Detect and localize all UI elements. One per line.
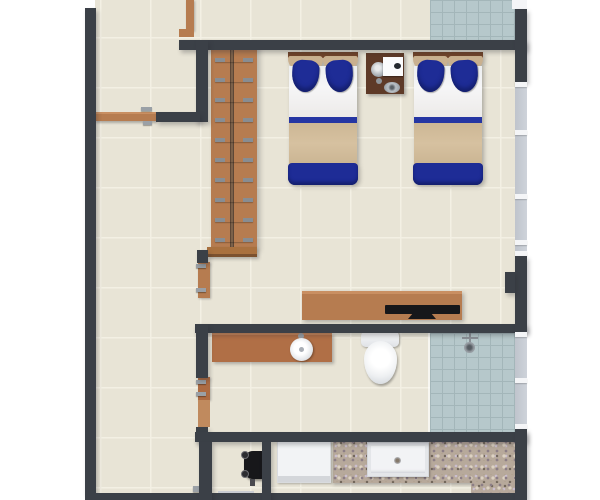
hanger-hook <box>215 198 253 202</box>
door-hinge <box>196 392 206 396</box>
wall-right-upper <box>515 9 527 82</box>
window-mullion <box>515 194 527 199</box>
wall-top-horizontal <box>179 40 527 50</box>
hanger-hook <box>215 218 253 222</box>
wardrobe-rail-hooks <box>211 44 257 249</box>
wall-bath-left <box>196 324 208 378</box>
bed-blanket <box>414 123 482 164</box>
shower-head-icon <box>464 342 475 353</box>
hanger-hook <box>215 98 253 102</box>
tv-console <box>302 291 462 320</box>
telephone-card <box>383 57 403 76</box>
hanger-hook <box>215 118 253 122</box>
bathroom-door-leaf <box>198 400 210 427</box>
heater-knob <box>241 470 249 478</box>
tray-icon <box>384 82 400 93</box>
tv-screen <box>385 305 460 314</box>
floorplan-scene <box>0 0 600 500</box>
hanger-hook <box>215 158 253 162</box>
bathroom-vanity <box>212 333 332 362</box>
wall-kitchen-divider <box>195 432 527 442</box>
shower-glass-partition <box>428 333 430 432</box>
wardrobe-base <box>207 247 257 257</box>
window-mullion <box>515 130 527 135</box>
heater-pipe <box>250 479 255 486</box>
wall-bath-divider <box>195 324 527 333</box>
sink-drain-knob <box>394 457 401 464</box>
wall-right-middle <box>515 256 527 332</box>
entry-door <box>95 112 156 121</box>
wall-wardrobe-stub <box>197 250 208 263</box>
hanger-hook <box>215 178 253 182</box>
shower-arm <box>462 337 478 339</box>
hanger-hook <box>215 238 253 242</box>
window-top-corner <box>512 0 527 9</box>
refrigerator <box>277 441 331 483</box>
bed-blanket <box>289 123 357 164</box>
balcony-floor <box>430 0 516 41</box>
wall-bottom <box>85 493 527 500</box>
nightstand <box>366 53 404 94</box>
window-right-upper <box>515 82 527 256</box>
wall-right-bottom <box>515 429 527 500</box>
wall-left <box>85 8 96 494</box>
bed-1 <box>288 52 358 185</box>
window-mullion <box>515 82 527 87</box>
wall-closet-vertical <box>196 40 208 122</box>
hanger-hook <box>215 58 253 62</box>
wall-utility-right <box>262 442 271 500</box>
door-hinge <box>196 264 206 268</box>
hanger-hook <box>215 78 253 82</box>
window-mullion <box>515 378 527 383</box>
basin-drain <box>299 347 304 352</box>
door-hinge <box>196 288 206 292</box>
entry-door-handle <box>143 121 152 125</box>
window-mullion <box>515 332 527 337</box>
bed-2 <box>413 52 483 185</box>
wall-utility-left <box>199 442 212 500</box>
door-hinge <box>196 380 206 384</box>
window-right-lower <box>515 332 527 429</box>
console-edge <box>302 291 462 294</box>
heater-knob <box>241 451 249 459</box>
wall-entry-piece <box>156 112 200 122</box>
hanger-hook <box>215 138 253 142</box>
wall-right-pilaster <box>505 272 515 293</box>
entry-door-handle <box>141 107 152 111</box>
bed-foot-runner <box>413 163 483 185</box>
wardrobe <box>211 44 257 249</box>
lamp-base <box>376 78 382 84</box>
door-jamb-top <box>186 0 194 31</box>
bed-foot-runner <box>288 163 358 185</box>
window-mullion <box>515 240 527 245</box>
door-jamb-top-foot <box>179 29 194 37</box>
telephone-icon <box>394 63 401 69</box>
